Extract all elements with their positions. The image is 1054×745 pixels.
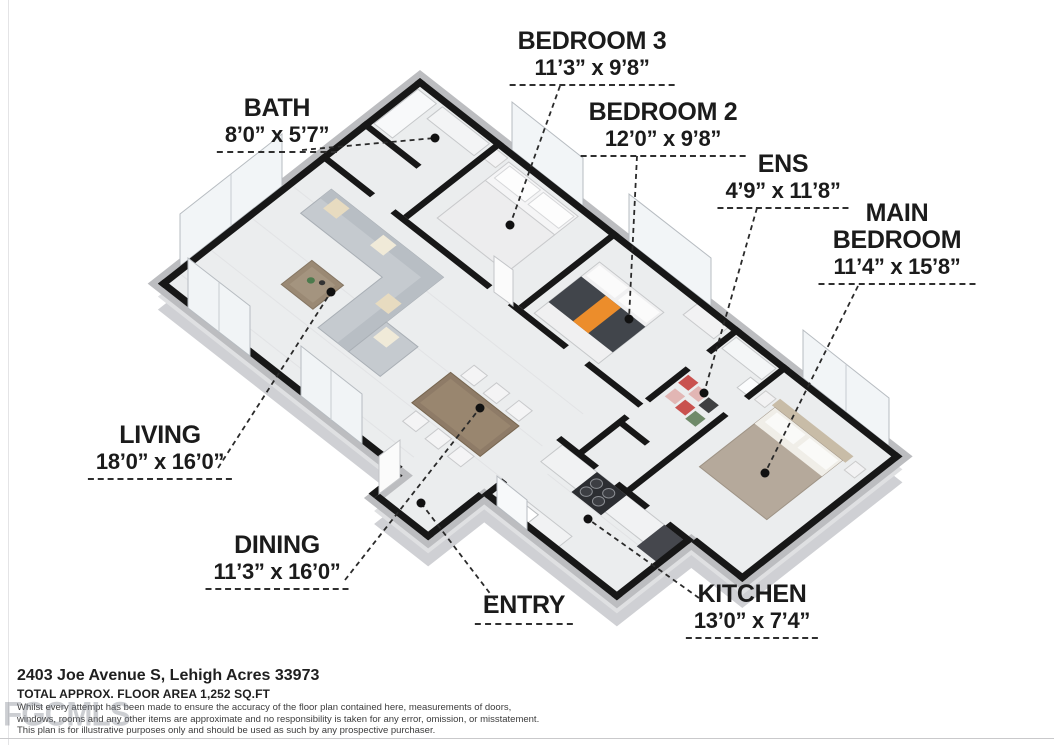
room-name: BATH [225,95,329,122]
room-name: BEDROOM 3 [518,28,667,55]
room-name: BEDROOM 2 [589,99,738,126]
room-name: DINING [214,532,341,559]
dot-bedroom2 [625,315,634,324]
dot-kitchen [584,515,593,524]
page-left-rule [8,0,9,745]
room-dims: 11’3” x 9’8” [518,55,667,80]
dot-living [327,288,336,297]
label-living: LIVING 18’0” x 16’0” [88,422,232,480]
dot-bedroom3 [506,221,515,230]
label-kitchen: KITCHEN 13’0” x 7’4” [686,581,818,639]
label-bath: BATH 8’0” x 5’7” [217,95,337,153]
room-dims: 11’4” x 15’8” [827,254,968,279]
room-dims: 11’3” x 16’0” [214,559,341,584]
label-bedroom-3: BEDROOM 3 11’3” x 9’8” [510,28,675,86]
dot-main-bedroom [761,469,770,478]
room-name: MAIN BEDROOM [827,200,968,254]
property-address: 2403 Joe Avenue S, Lehigh Acres 33973 [17,666,539,686]
floor-plan-drawing [0,0,1054,745]
page-bottom-rule [0,738,1054,739]
room-dims: 12’0” x 9’8” [589,126,738,151]
dot-ens [700,389,709,398]
room-name: ENTRY [483,592,565,619]
label-dining: DINING 11’3” x 16’0” [206,532,349,590]
room-dims: 18’0” x 16’0” [96,449,224,474]
room-dims: 13’0” x 7’4” [694,608,810,633]
dot-bath [431,134,440,143]
room-name: LIVING [96,422,224,449]
label-main-bedroom: MAIN BEDROOM 11’4” x 15’8” [819,200,976,285]
room-name: ENS [725,151,840,178]
room-dims: 8’0” x 5’7” [225,122,329,147]
label-bedroom-2: BEDROOM 2 12’0” x 9’8” [581,99,746,157]
dot-dining [476,404,485,413]
dot-entry [417,499,426,508]
label-entry: ENTRY [475,592,573,625]
room-name: KITCHEN [694,581,810,608]
floor-plan-page: BEDROOM 3 11’3” x 9’8” BATH 8’0” x 5’7” … [0,0,1054,745]
mls-watermark: FGCMLS [3,694,130,734]
